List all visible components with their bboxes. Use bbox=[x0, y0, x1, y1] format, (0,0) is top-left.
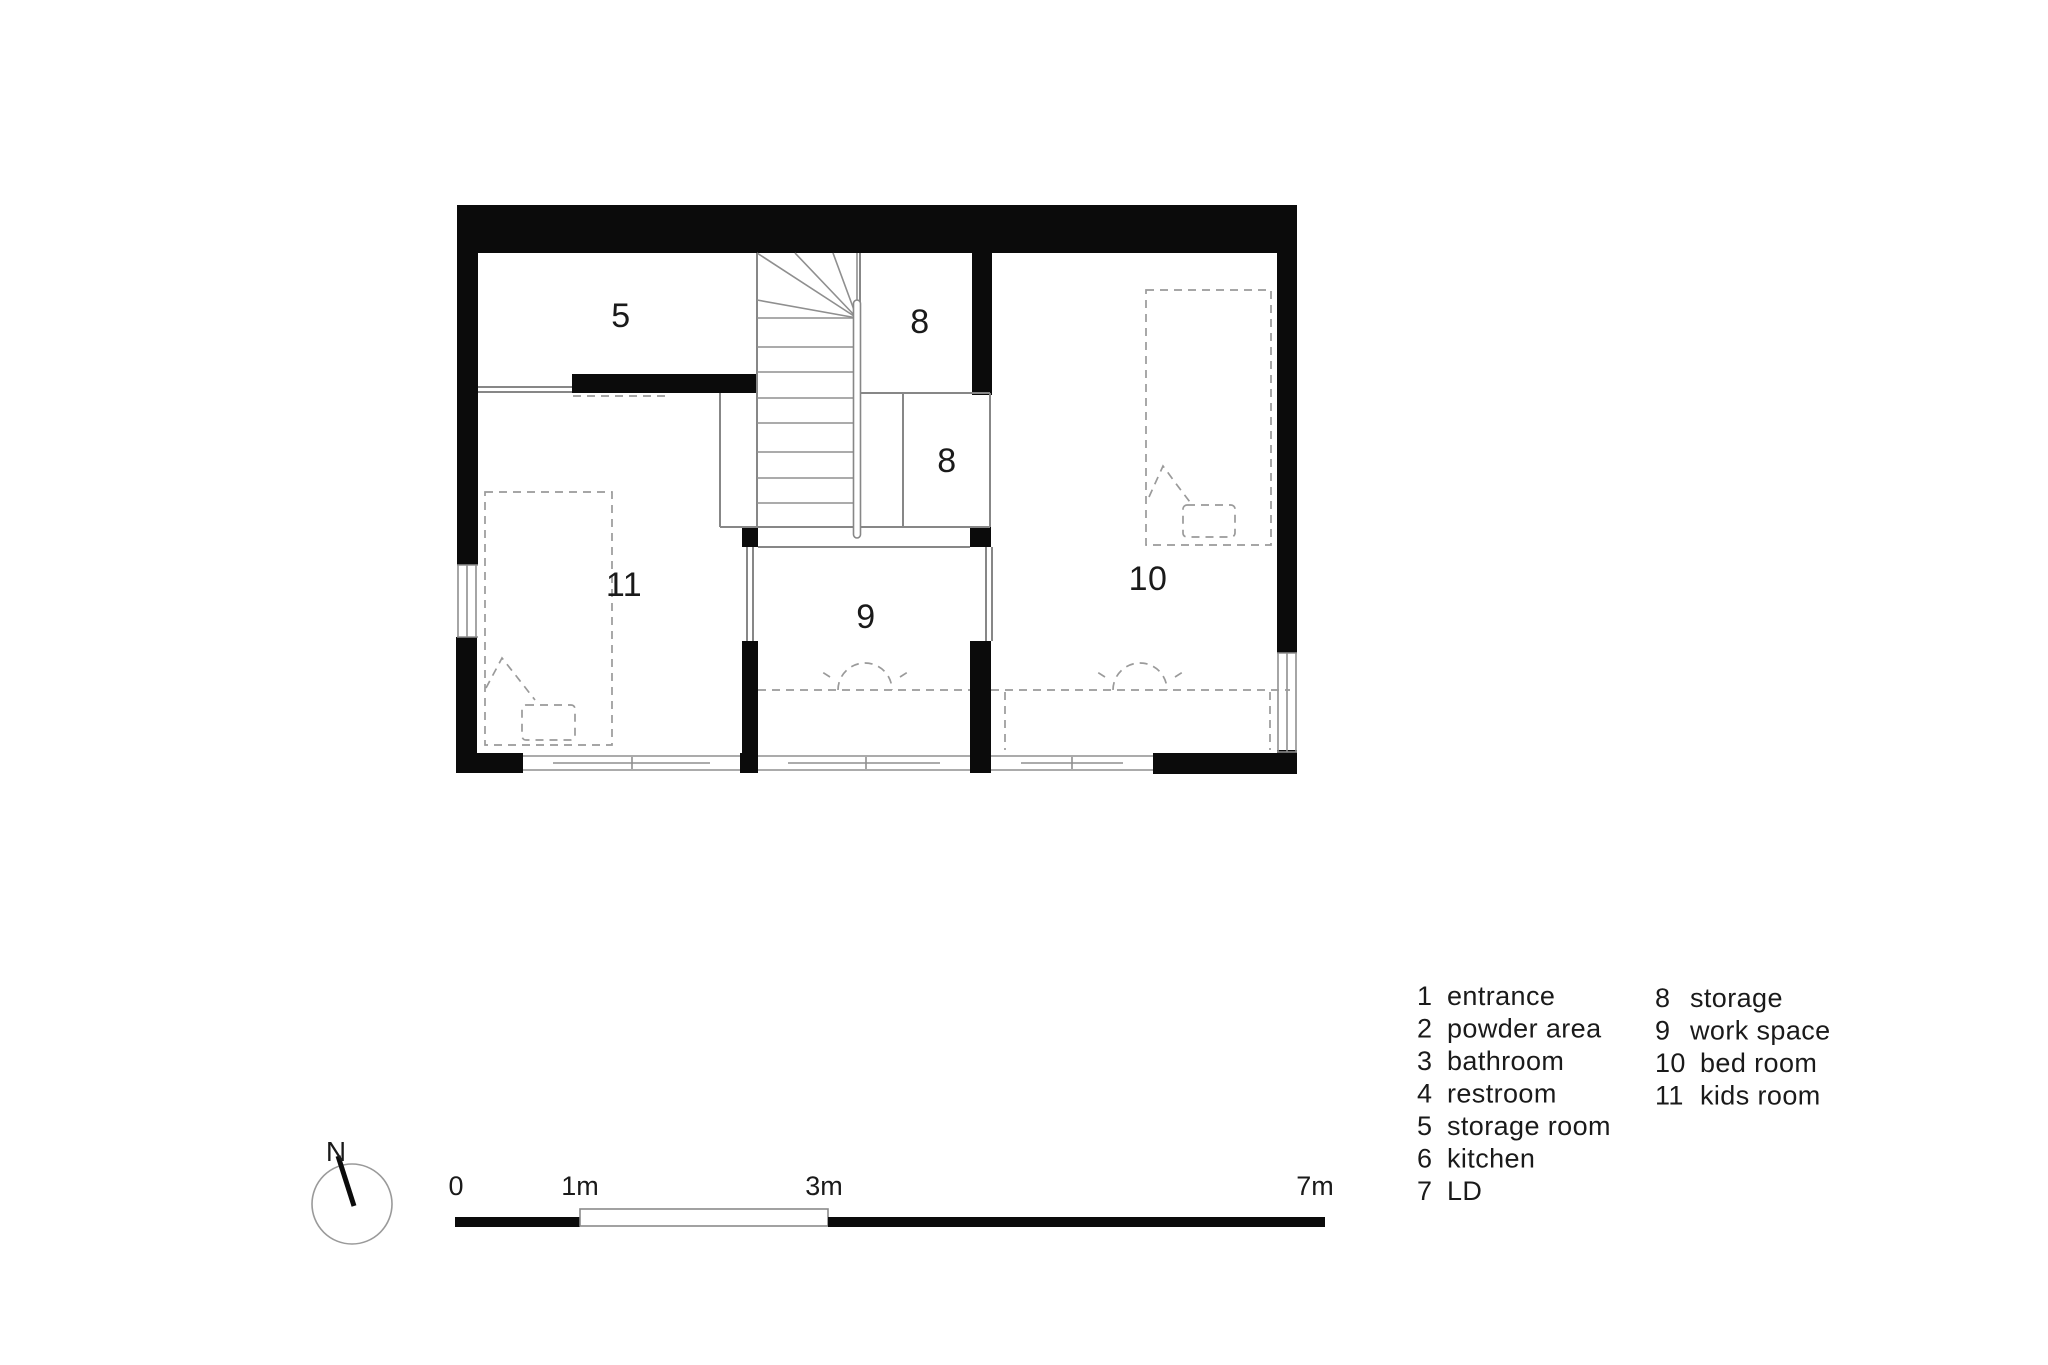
chair-room10 bbox=[1113, 663, 1167, 690]
legend-column-1: 1entrance 2powder area 3bathroom 4restro… bbox=[1417, 981, 1611, 1206]
legend-item-6: 6kitchen bbox=[1417, 1144, 1535, 1174]
legend-item-7: 7LD bbox=[1417, 1176, 1482, 1206]
legend-column-2: 8storage 9work space 10bed room 11kids r… bbox=[1655, 983, 1831, 1111]
wall-east-lower bbox=[1277, 750, 1297, 774]
window-west bbox=[457, 565, 478, 637]
bed-fold-room10 bbox=[1149, 466, 1193, 506]
legend-item-2: 2powder area bbox=[1417, 1014, 1602, 1044]
wall-room8-room10 bbox=[972, 253, 992, 395]
legend-item-1: 1entrance bbox=[1417, 981, 1555, 1011]
stair-treads bbox=[757, 318, 855, 503]
wall-south-post-1 bbox=[740, 753, 758, 773]
legend: 1entrance 2powder area 3bathroom 4restro… bbox=[1417, 981, 1831, 1206]
scale-label-3m: 3m bbox=[805, 1171, 843, 1201]
bed-pillow-room10 bbox=[1183, 505, 1235, 537]
wall-north bbox=[457, 205, 1297, 253]
legend-item-9: 9work space bbox=[1655, 1016, 1831, 1046]
wall-southeast bbox=[1153, 753, 1297, 774]
desk-returns-room10 bbox=[1005, 692, 1270, 750]
scale-segment-0-1m bbox=[455, 1217, 580, 1227]
legend-item-11: 11kids room bbox=[1655, 1081, 1821, 1111]
stair-handrail bbox=[854, 300, 861, 538]
room-label-10: 10 bbox=[1129, 560, 1168, 598]
floor-plan: 5 8 8 11 9 10 bbox=[456, 205, 1297, 774]
bed-room10 bbox=[1146, 290, 1271, 545]
legend-item-8: 8storage bbox=[1655, 983, 1783, 1013]
post-room9-nw bbox=[742, 527, 758, 547]
legend-item-10: 10bed room bbox=[1655, 1048, 1817, 1078]
wall-southwest-corner bbox=[456, 753, 523, 773]
wall-east-upper bbox=[1277, 253, 1297, 653]
scale-bar: 0 1m 3m 7m bbox=[448, 1171, 1333, 1227]
north-label: N bbox=[326, 1136, 346, 1167]
room-label-8-mid: 8 bbox=[937, 442, 956, 480]
window-south-2 bbox=[758, 756, 970, 770]
window-south-3 bbox=[991, 756, 1153, 770]
room-label-9: 9 bbox=[856, 598, 875, 636]
walls bbox=[456, 205, 1297, 774]
wall-room5-room11 bbox=[572, 374, 758, 393]
legend-item-4: 4restroom bbox=[1417, 1079, 1557, 1109]
furniture bbox=[485, 290, 1290, 750]
room-label-5: 5 bbox=[611, 297, 630, 335]
windows bbox=[457, 565, 1297, 770]
window-south-1 bbox=[523, 756, 740, 770]
wall-south-post-2 bbox=[970, 753, 991, 773]
floor-plan-drawing: 5 8 8 11 9 10 N 0 1m 3m 7m 1entrance 2po… bbox=[0, 0, 2048, 1365]
room-label-8-top: 8 bbox=[910, 303, 929, 341]
chair-room9 bbox=[838, 663, 892, 690]
bed-pillow-room11 bbox=[522, 705, 575, 740]
scale-label-1m: 1m bbox=[561, 1171, 599, 1201]
legend-item-3: 3bathroom bbox=[1417, 1046, 1564, 1076]
legend-item-5: 5storage room bbox=[1417, 1111, 1611, 1141]
bed-fold-room11 bbox=[486, 658, 535, 700]
post-room9-ne bbox=[970, 527, 991, 547]
scale-segment-3-7m bbox=[828, 1217, 1325, 1227]
scale-label-7m: 7m bbox=[1296, 1171, 1334, 1201]
chair-armrests-room10 bbox=[1094, 670, 1186, 677]
window-east bbox=[1277, 653, 1297, 752]
north-indicator: N bbox=[312, 1136, 392, 1244]
scale-segment-1-3m bbox=[580, 1209, 828, 1226]
bed-room11 bbox=[485, 492, 612, 745]
chair-armrests-room9 bbox=[819, 670, 911, 677]
room-label-11: 11 bbox=[606, 566, 642, 604]
wall-west-upper bbox=[457, 253, 478, 565]
floor-plan-page: 5 8 8 11 9 10 N 0 1m 3m 7m 1entrance 2po… bbox=[0, 0, 2048, 1365]
post-room9-sw bbox=[742, 641, 758, 753]
post-room9-se bbox=[970, 641, 991, 753]
room-labels: 5 8 8 11 9 10 bbox=[606, 297, 1168, 636]
staircase bbox=[757, 253, 861, 538]
scale-label-0: 0 bbox=[448, 1171, 463, 1201]
wall-west-lower bbox=[456, 637, 477, 754]
stair-winder-fan bbox=[757, 253, 857, 318]
